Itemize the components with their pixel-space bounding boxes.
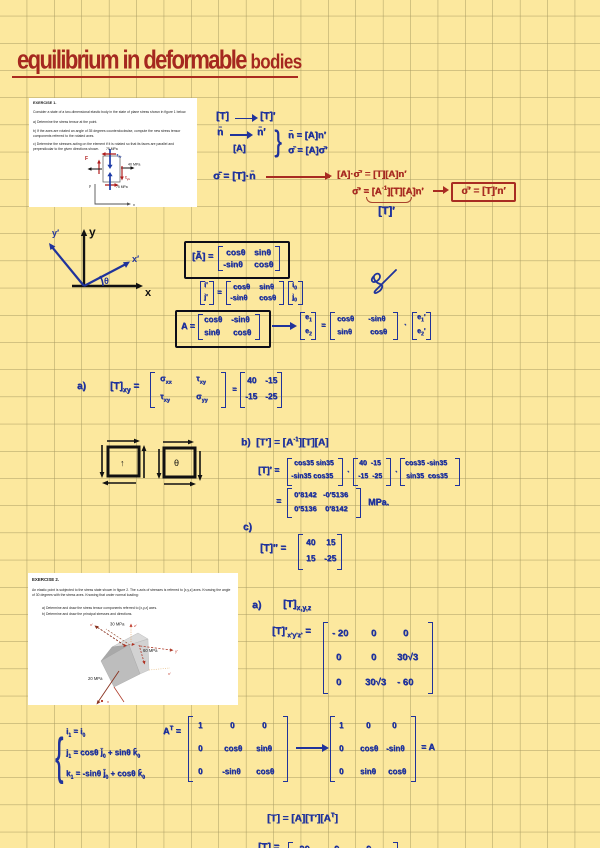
svg-text:F: F [85,156,88,162]
svg-text:40 MPa: 40 MPa [128,163,140,167]
svg-text:y′: y′ [52,228,59,238]
svg-text:60 MPa: 60 MPa [143,648,158,653]
svg-text:20 MPa: 20 MPa [88,676,103,681]
svg-text:θ: θ [104,276,109,286]
svg-text:75 MPa: 75 MPa [106,147,118,151]
svg-text:θ: θ [174,458,179,468]
svg-text:x′: x′ [90,622,93,627]
svg-text:y′: y′ [175,649,178,654]
svg-text:x: x [107,699,109,704]
svg-text:y: y [89,184,91,188]
svg-text:75 MPa: 75 MPa [116,185,128,189]
svg-text:x: x [145,287,152,299]
svg-text:↑: ↑ [120,458,125,468]
svg-text:x′: x′ [168,671,171,676]
svg-text:y: y [89,225,96,239]
svg-text:z′: z′ [134,623,137,628]
svg-text:x′: x′ [132,254,139,264]
svg-text:30 MPa: 30 MPa [110,622,125,627]
svg-text:x: x [133,203,135,207]
svg-text:τxy: τxy [117,153,122,159]
svg-text:τyx: τyx [125,175,130,181]
